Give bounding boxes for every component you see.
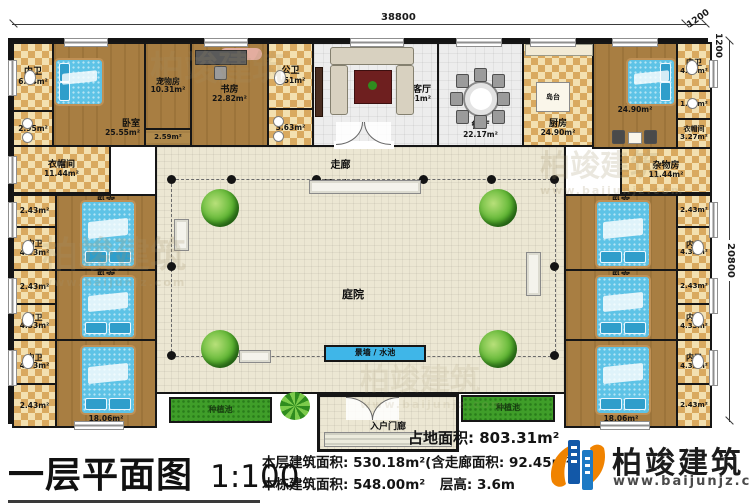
planter-label: 种植池 — [496, 404, 520, 412]
bed — [626, 58, 676, 106]
room-l-closet1: 2.43m² — [12, 194, 57, 228]
room-ne-closet: 衣帽间 3.27m² — [676, 118, 712, 149]
window — [709, 278, 718, 314]
room-area: 24.90m² — [618, 106, 653, 114]
corridor-label: 走廊 — [331, 160, 351, 171]
stat-floor-area: 本层建筑面积: 530.18m²(含走廊面积: 92.45m²) — [262, 451, 578, 471]
palm-plant — [280, 392, 310, 420]
chair — [474, 68, 487, 82]
company-logo-url: www.baijunjz.com — [613, 474, 750, 489]
room-area: 2.43m² — [680, 207, 708, 214]
tree — [479, 330, 517, 368]
toilet — [692, 312, 704, 327]
bed — [80, 345, 136, 415]
room-area: 2.43m² — [20, 402, 50, 410]
chair — [644, 130, 657, 144]
building-outline: 内卫 6.44m² 2.95m² 卧室 25.55m² 宠物房 10.31m² … — [8, 38, 708, 424]
table-plant — [368, 81, 377, 90]
window — [350, 38, 404, 47]
room-area: 11.44m² — [649, 171, 684, 179]
room-area: 2.43m² — [20, 207, 50, 215]
drawing-title: 一层平面图 — [8, 455, 193, 496]
room-area: 11.44m² — [44, 170, 79, 178]
sink — [273, 131, 284, 142]
toilet — [274, 70, 286, 85]
stat-land-area: 占地面积: 803.31m² — [408, 427, 559, 448]
top-dimension-label: 38800 — [378, 12, 419, 23]
bench — [526, 252, 541, 296]
planter-label: 种植池 — [209, 406, 233, 414]
window — [530, 38, 576, 47]
toilet — [692, 240, 704, 255]
room-r-closet3: 2.43m² — [676, 383, 712, 428]
side-table — [628, 132, 642, 144]
floor-plan-canvas: 38800 1200 1200 20800 内卫 6.44m² 2.95m² 卧… — [0, 0, 750, 504]
chair — [497, 92, 510, 106]
window — [8, 350, 17, 386]
room-public-bath2: 3.63m² — [267, 108, 314, 147]
kitchen-island: 岛台 — [536, 82, 570, 112]
right-dimension-line — [729, 40, 730, 422]
right-dimension-label: 20800 — [725, 240, 736, 281]
planter-right: 种植池 — [461, 395, 555, 422]
room-pet: 宠物房 10.31m² — [144, 42, 192, 130]
drawing-title-block: 一层平面图 1:100 — [8, 446, 260, 503]
window — [8, 60, 17, 96]
study-desk — [195, 50, 247, 65]
stat-building-value: 本栋建筑面积: 548.00m² — [262, 477, 425, 493]
corner-dimension-label-h: 1200 — [683, 6, 714, 32]
bed — [80, 275, 136, 339]
planter-left: 种植池 — [169, 397, 272, 423]
tv-cabinet — [315, 67, 323, 117]
sofa — [396, 65, 414, 115]
column — [550, 175, 559, 184]
courtyard-label: 庭院 — [342, 289, 364, 301]
dining-set — [450, 68, 510, 128]
column — [487, 175, 496, 184]
room-area: 24.90m² — [541, 129, 576, 137]
room-area: 2.43m² — [20, 283, 50, 291]
room-area: 3.27m² — [680, 134, 708, 141]
tree — [201, 330, 239, 368]
bench — [309, 180, 421, 194]
bed — [595, 200, 651, 268]
bed — [595, 275, 651, 339]
chair — [612, 130, 625, 144]
toilet — [692, 354, 704, 369]
room-w-closet: 衣帽间 11.44m² — [12, 145, 111, 194]
chair — [474, 115, 487, 129]
chair — [492, 110, 505, 124]
room-area: 2.59m² — [154, 134, 182, 141]
room-l-bath1: 内卫 4.33m² — [12, 226, 57, 271]
room-r-closet2: 2.43m² — [676, 269, 712, 305]
room-nw-bath2: 2.95m² — [12, 110, 54, 147]
tree — [201, 189, 239, 227]
window — [709, 350, 718, 386]
window — [204, 38, 248, 47]
chair — [492, 74, 505, 88]
column — [167, 175, 176, 184]
toilet — [686, 60, 698, 75]
window — [709, 60, 718, 88]
door-arc — [372, 397, 399, 420]
window — [64, 38, 108, 47]
column — [550, 262, 559, 271]
room-r-closet1: 2.43m² — [676, 194, 712, 228]
sink — [22, 118, 33, 129]
toilet — [22, 240, 34, 255]
company-logo-icon — [546, 430, 610, 500]
sink — [22, 132, 33, 143]
sink — [687, 98, 698, 109]
room-l-bath2: 内卫 4.33m² — [12, 303, 57, 341]
room-l-bath3: 内卫 4.33m² — [12, 339, 57, 385]
toilet — [24, 70, 36, 85]
window — [612, 38, 658, 47]
toilet — [22, 312, 34, 327]
column — [550, 351, 559, 360]
corner-dimension-label-v: 1200 — [713, 30, 723, 61]
door-arc — [346, 397, 373, 420]
chair — [450, 92, 463, 106]
room-l-closet2: 2.43m² — [12, 269, 57, 305]
bed — [54, 58, 104, 106]
room-area: 2.43m² — [680, 283, 708, 290]
sofa — [330, 65, 348, 115]
water-feature: 景墙 / 水池 — [324, 345, 426, 362]
stat-floor-height: 层高: 3.6m — [440, 477, 515, 493]
bed — [595, 345, 651, 415]
corridor-courtyard: 走廊 92.45m² 庭院 — [155, 145, 566, 394]
window — [8, 156, 17, 184]
window — [456, 38, 502, 47]
column — [167, 262, 176, 271]
room-area: 10.31m² — [151, 86, 186, 94]
window — [600, 421, 650, 430]
room-area: 22.82m² — [212, 95, 247, 103]
chair — [456, 74, 469, 88]
island-label: 岛台 — [546, 92, 560, 102]
water-label: 景墙 / 水池 — [355, 349, 396, 357]
room-e-storage: 杂物房 11.44m² — [620, 147, 712, 194]
tree — [479, 189, 517, 227]
room-area: 25.55m² — [105, 129, 140, 137]
room-area: 2.43m² — [680, 402, 708, 409]
room-l-closet3: 2.43m² — [12, 383, 57, 428]
window — [8, 202, 17, 238]
window — [709, 202, 718, 238]
desk-chair — [214, 66, 227, 80]
sofa — [330, 47, 414, 65]
room-area: 22.17m² — [463, 131, 498, 139]
column — [167, 351, 176, 360]
chair — [456, 110, 469, 124]
window — [8, 278, 17, 314]
top-dimension-line — [12, 24, 706, 25]
toilet — [22, 354, 34, 369]
bench — [174, 219, 189, 251]
window — [74, 421, 124, 430]
column — [227, 175, 236, 184]
stat-building-area: 本栋建筑面积: 548.00m² 层高: 3.6m — [262, 473, 515, 493]
bench — [239, 350, 271, 363]
sink — [273, 116, 284, 127]
bed — [80, 200, 136, 268]
